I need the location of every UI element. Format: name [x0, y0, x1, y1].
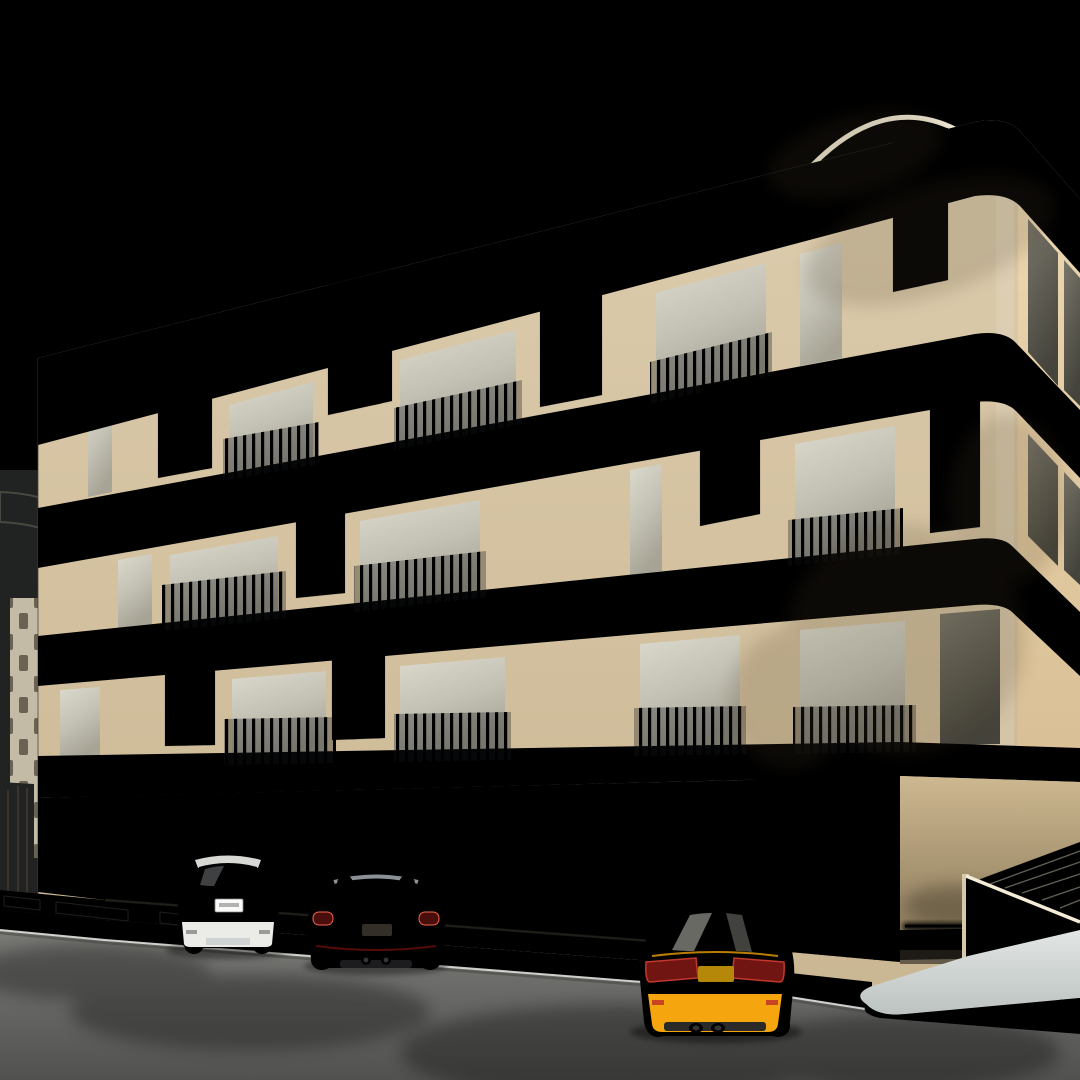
- perforated-screen-panel: [328, 269, 392, 415]
- perforated-screen-panel: [165, 633, 215, 746]
- suv-taillight: [253, 895, 275, 910]
- window-narrow: [118, 554, 152, 628]
- sedan-taillight: [646, 958, 698, 982]
- balcony-railing: [634, 706, 746, 756]
- side-mirror: [792, 930, 803, 938]
- window-narrow: [630, 464, 662, 575]
- architectural-rendering: [0, 0, 1080, 1080]
- suv-taillight: [182, 895, 204, 910]
- perforated-screen-panel: [296, 465, 345, 598]
- plate-recess: [698, 966, 734, 982]
- perforated-screen-panel: [332, 630, 385, 740]
- balcony-railing: [394, 712, 511, 762]
- convertible-taillight: [419, 912, 439, 925]
- window-narrow: [60, 687, 100, 760]
- scene-canvas: [0, 0, 1080, 1080]
- perforated-screen-panel: [158, 337, 212, 478]
- perforated-screen-panel: [540, 238, 602, 407]
- convertible-taillight: [313, 912, 333, 925]
- sedan-taillight: [732, 958, 784, 982]
- side-mirror: [630, 930, 641, 938]
- perforated-screen-panel: [700, 375, 760, 526]
- ground-corner-wall: [38, 796, 105, 900]
- yellow-sedan: [630, 904, 803, 1043]
- balcony-railing: [224, 717, 336, 765]
